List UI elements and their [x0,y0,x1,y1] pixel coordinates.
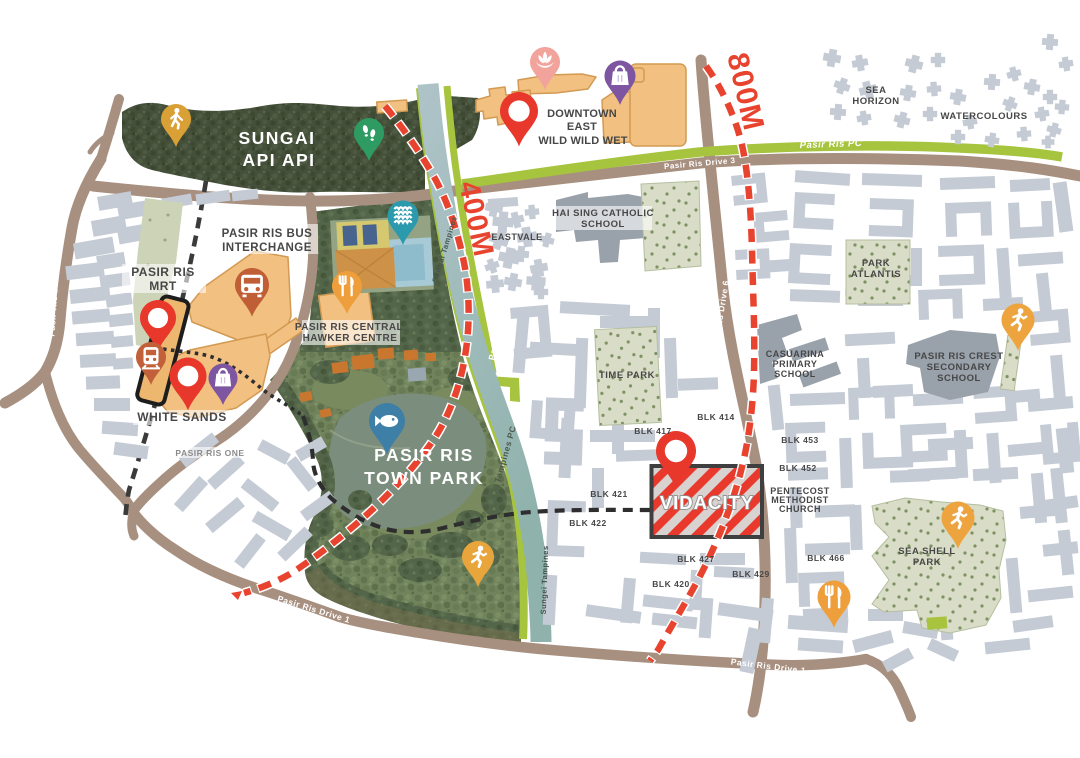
svg-text:TOWN PARK: TOWN PARK [364,468,484,488]
svg-text:MRT: MRT [149,279,177,293]
svg-text:BLK 420: BLK 420 [652,579,690,589]
svg-text:BLK 452: BLK 452 [779,463,817,473]
svg-text:WHITE SANDS: WHITE SANDS [137,410,227,424]
svg-text:CHURCH: CHURCH [779,504,821,514]
svg-text:BLK 414: BLK 414 [697,412,735,422]
svg-text:EAST: EAST [567,121,597,133]
svg-text:BLK 421: BLK 421 [590,489,628,499]
svg-text:SCHOOL: SCHOOL [774,369,816,379]
svg-text:PARK: PARK [862,258,890,269]
svg-text:PASIR RIS CENTRAL: PASIR RIS CENTRAL [295,322,403,333]
svg-text:BLK 453: BLK 453 [781,435,819,445]
svg-text:PASIR RIS ONE: PASIR RIS ONE [175,448,244,458]
svg-text:EASTVALE: EASTVALE [491,232,542,242]
svg-text:PASIR RIS BUS: PASIR RIS BUS [222,228,313,240]
svg-text:BLK 427: BLK 427 [677,554,715,564]
svg-text:HORIZON: HORIZON [852,96,899,107]
svg-text:SEA: SEA [865,85,886,96]
svg-text:BLK 422: BLK 422 [569,518,607,528]
svg-text:HAI SING CATHOLIC: HAI SING CATHOLIC [552,208,654,219]
svg-text:PASIR RIS: PASIR RIS [131,265,195,279]
svg-text:Pasir Ris PC: Pasir Ris PC [799,138,862,151]
svg-text:PASIR RIS CREST: PASIR RIS CREST [914,351,1003,362]
svg-text:ATLANTIS: ATLANTIS [851,269,901,280]
svg-text:PASIR RIS: PASIR RIS [374,445,474,465]
svg-text:SCHOOL: SCHOOL [581,219,625,230]
svg-text:PRIMARY: PRIMARY [773,359,818,369]
svg-text:TIME PARK: TIME PARK [599,370,655,381]
svg-text:BLK 466: BLK 466 [807,553,845,563]
svg-text:SECONDARY: SECONDARY [927,362,992,373]
svg-text:HAWKER CENTRE: HAWKER CENTRE [303,333,398,344]
svg-text:SEA SHELL: SEA SHELL [898,546,955,557]
svg-text:API API: API API [242,150,315,170]
svg-text:BLK 429: BLK 429 [732,569,770,579]
svg-text:SCHOOL: SCHOOL [937,373,981,384]
svg-text:VIDACITY: VIDACITY [660,492,754,513]
svg-text:PARK: PARK [913,557,941,568]
svg-text:BLK 417: BLK 417 [634,426,672,436]
svg-text:SUNGAI: SUNGAI [238,128,315,148]
svg-text:WILD WILD WET: WILD WILD WET [538,135,627,147]
svg-text:INTERCHANGE: INTERCHANGE [222,242,312,254]
svg-text:WATERCOLOURS: WATERCOLOURS [940,111,1027,122]
svg-text:CASUARINA: CASUARINA [766,349,825,359]
svg-text:DOWNTOWN: DOWNTOWN [547,108,617,120]
